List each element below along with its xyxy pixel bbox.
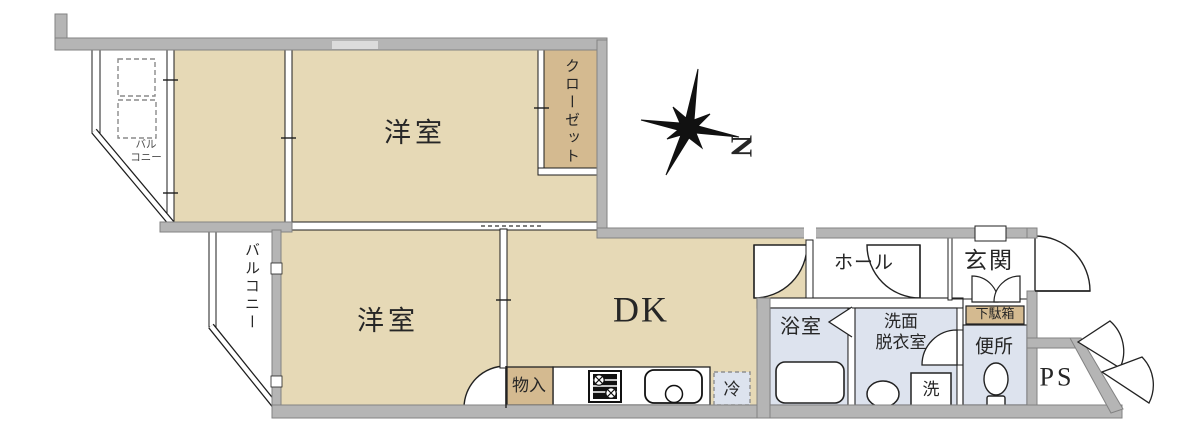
- label-entrance: 玄関: [964, 247, 1014, 275]
- entrance-door-arc: [1035, 236, 1090, 291]
- label-western-room-lower: 洋室: [357, 305, 419, 337]
- balcony-equipment: [118, 59, 156, 138]
- upper-room-window-wall: [167, 48, 174, 224]
- wall-break-hall: [804, 227, 816, 239]
- sink-icon: [645, 370, 702, 403]
- shoe-cabinet-doors: [972, 276, 1020, 302]
- label-balcony-upper-l2: コニー: [130, 153, 162, 166]
- wet-wall-top: [757, 298, 963, 308]
- label-washer: 洗: [923, 380, 940, 400]
- stove-icon: [589, 371, 621, 402]
- balcony1-rail: [92, 48, 100, 133]
- entrance-top-marker: [975, 226, 1006, 241]
- label-toilet-room: 便所: [975, 337, 1013, 360]
- label-pipe-space: PS: [1040, 361, 1075, 392]
- label-compass-north: N: [723, 135, 760, 157]
- wall-left-lower: [272, 230, 281, 418]
- toilet-icon: [984, 363, 1008, 408]
- label-closet: クローゼット: [562, 58, 580, 166]
- label-storage: 物入: [512, 376, 546, 396]
- window-left-2: [271, 376, 282, 387]
- upper-room-partition: [285, 48, 292, 224]
- label-refrigerator: 冷: [724, 380, 741, 400]
- wall-right-stub: [1027, 228, 1037, 238]
- bathtub-icon: [776, 362, 844, 403]
- label-dk: DK: [613, 288, 669, 331]
- wall-top-upper: [55, 38, 607, 50]
- window-top-wall: [332, 41, 378, 49]
- wash-toilet-wall-upper: [957, 308, 963, 330]
- wall-wet-left: [757, 298, 770, 418]
- room-dk-wall: [500, 229, 507, 368]
- floor-plan: 洋室 洋室 DK クローゼット バル コニー バルコニー ホール 玄関 下駄箱 …: [0, 0, 1200, 441]
- label-balcony-upper-l1: バル: [136, 140, 157, 153]
- wash-toilet-wall-lower: [957, 365, 963, 405]
- upper-lower-divider: [292, 222, 600, 230]
- label-bathroom: 浴室: [780, 315, 822, 339]
- wall-bottom: [272, 405, 1122, 418]
- compass-star: [641, 69, 739, 175]
- closet-wall-left: [538, 48, 544, 173]
- compass-rose: [641, 69, 739, 175]
- label-shoe-cabinet: 下駄箱: [975, 306, 1014, 322]
- floor-plan-drawing: [0, 0, 1200, 441]
- wall-right-upper: [597, 40, 607, 238]
- closet-wall-bottom: [538, 168, 599, 175]
- label-balcony-lower: バルコニー: [242, 242, 260, 332]
- basin-icon: [867, 381, 899, 407]
- balcony2-rail: [209, 228, 216, 327]
- label-washroom-l2: 脱衣室: [876, 333, 927, 353]
- window-left-1: [271, 263, 282, 274]
- entrance-step: [948, 238, 952, 300]
- label-hall: ホール: [834, 253, 894, 276]
- label-western-room-upper: 洋室: [384, 117, 446, 149]
- hall-wall-stub: [806, 240, 813, 298]
- label-washroom-l1: 洗面: [884, 312, 918, 332]
